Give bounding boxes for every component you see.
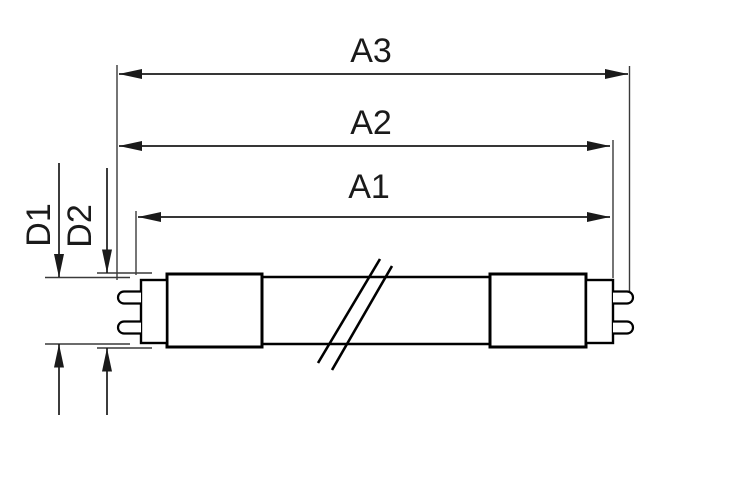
left-cap-plate	[141, 280, 167, 343]
arrowhead-a2-right	[587, 141, 610, 151]
dimension-label-a3: A3	[350, 34, 392, 68]
dimension-label-a2: A2	[350, 106, 392, 140]
tube-dimension-diagram: A3 A2 A1 D1 D2	[0, 0, 737, 479]
arrowhead-d2-down	[102, 250, 112, 274]
arrowhead-d1-up	[54, 344, 64, 368]
dimension-label-a1: A1	[348, 170, 390, 204]
dimension-label-d1: D1	[22, 203, 56, 246]
left-pin-top	[118, 292, 141, 304]
technical-drawing	[0, 0, 737, 479]
arrowhead-a3-right	[605, 69, 628, 79]
dimension-label-d2: D2	[63, 204, 97, 247]
right-end-cap	[490, 274, 586, 347]
left-end-cap	[167, 274, 262, 347]
right-cap-plate	[586, 280, 613, 343]
right-pin-top	[613, 292, 633, 304]
arrowhead-a3-left	[119, 69, 142, 79]
arrowhead-d1-down	[54, 254, 64, 278]
arrowhead-a1-left	[138, 212, 161, 222]
arrowhead-a1-right	[587, 212, 610, 222]
arrowhead-a2-left	[119, 141, 142, 151]
left-pin-bottom	[118, 322, 141, 334]
break-line-right	[332, 266, 392, 370]
right-pin-bottom	[613, 322, 633, 334]
arrowhead-d2-up	[102, 348, 112, 372]
break-line-left	[318, 259, 380, 363]
